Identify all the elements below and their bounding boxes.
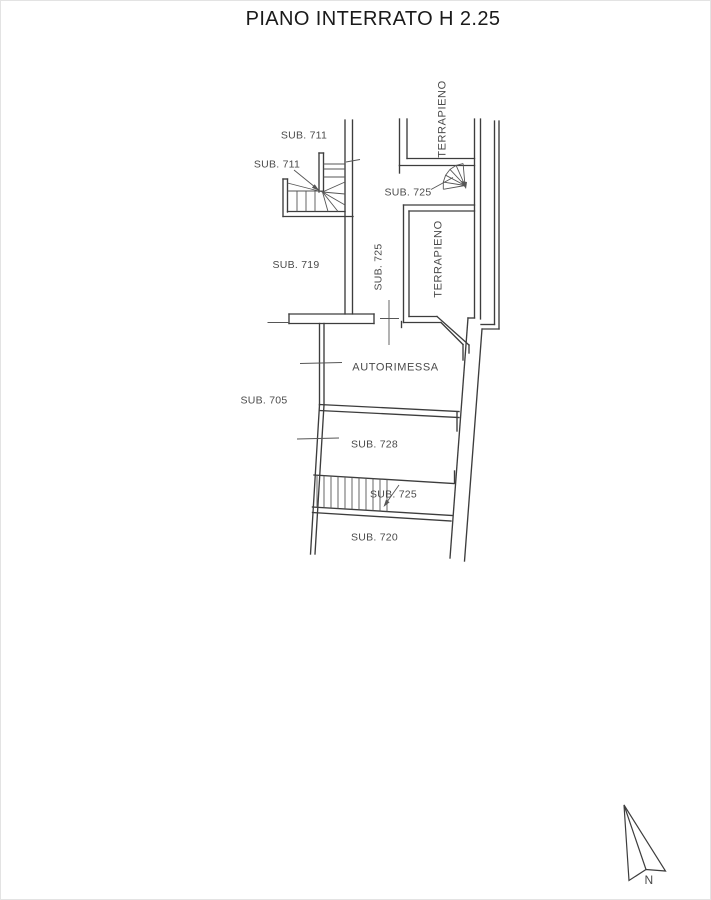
spiral-stair <box>443 164 467 190</box>
label-terrapieno-lower: TERRAPIENO <box>433 220 445 298</box>
north-arrow-icon <box>624 805 666 881</box>
label-terrapieno-upper: TERRAPIENO <box>437 80 449 158</box>
label-sub-725-shaft: SUB. 725 <box>373 244 385 291</box>
label-sub-725-spiral: SUB. 725 <box>385 187 432 199</box>
page-title: PIANO INTERRATO H 2.25 <box>246 8 501 30</box>
label-sub-725-stairs: SUB. 725 <box>370 489 417 501</box>
leader-lines <box>294 170 453 507</box>
label-sub-719: SUB. 719 <box>273 259 320 271</box>
floor-plan-drawing: PIANO INTERRATO H 2.25 <box>1 1 711 900</box>
label-autorimessa: AUTORIMESSA <box>352 362 439 374</box>
label-sub-711-lower: SUB. 711 <box>254 159 300 171</box>
label-sub-728: SUB. 728 <box>351 439 398 451</box>
north-label: N <box>645 873 654 887</box>
floor-plan-page: PIANO INTERRATO H 2.25 <box>0 0 711 900</box>
label-sub-705: SUB. 705 <box>241 395 288 407</box>
label-sub-711-upper: SUB. 711 <box>281 130 327 142</box>
label-sub-720: SUB. 720 <box>351 532 398 544</box>
